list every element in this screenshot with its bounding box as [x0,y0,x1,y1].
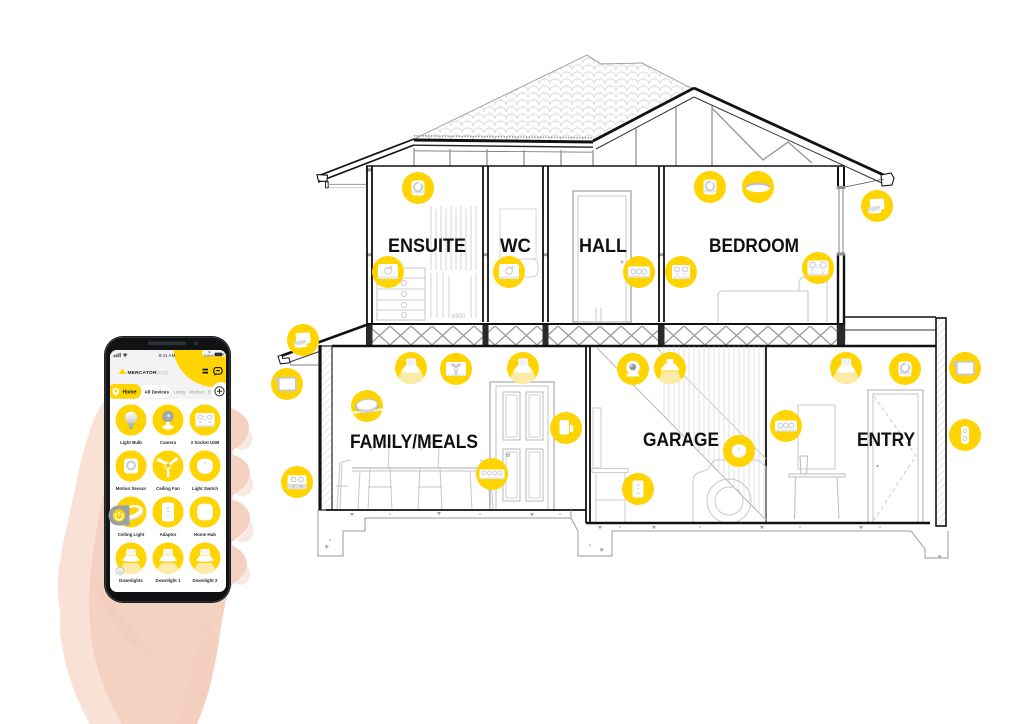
svg-text:Living: Living [174,390,186,395]
svg-text:Ceiling Light: Ceiling Light [118,532,145,537]
svg-text:Downlight 2: Downlight 2 [193,578,218,583]
svg-text:2 Socket USB: 2 Socket USB [191,440,220,445]
svg-text:9:41 AM: 9:41 AM [159,353,176,358]
svg-text:100%: 100% [203,353,214,358]
svg-text:HALL: HALL [579,236,627,257]
svg-text:Downlights: Downlights [119,578,143,583]
svg-text:BEDROOM: BEDROOM [709,236,799,257]
svg-text:All Devices: All Devices [145,390,170,395]
svg-text:WC: WC [500,236,531,257]
svg-text:B: B [208,390,211,395]
svg-text:ENSUITE: ENSUITE [388,236,466,257]
svg-text:ikuü: ikuü [156,369,168,376]
svg-text:Light Bulb: Light Bulb [120,440,142,445]
svg-text:Home: Home [123,390,137,396]
svg-text:Downlight 1: Downlight 1 [156,578,181,583]
svg-text:Home Hub: Home Hub [194,532,216,537]
svg-text:FAMILY/MEALS: FAMILY/MEALS [350,432,478,453]
svg-text:GARAGE: GARAGE [643,430,719,451]
svg-text:Adaptor: Adaptor [160,532,177,537]
svg-text:Kitchen: Kitchen [190,390,205,395]
svg-text:8800: 8800 [452,314,466,320]
svg-text:Light Switch: Light Switch [192,486,218,491]
svg-text:Ceiling Fan: Ceiling Fan [156,486,180,491]
svg-text:MERCATOR: MERCATOR [128,370,157,376]
svg-text:Motion Sensor: Motion Sensor [116,486,147,491]
svg-text:Camera: Camera [160,440,177,445]
svg-text:ENTRY: ENTRY [857,430,915,451]
